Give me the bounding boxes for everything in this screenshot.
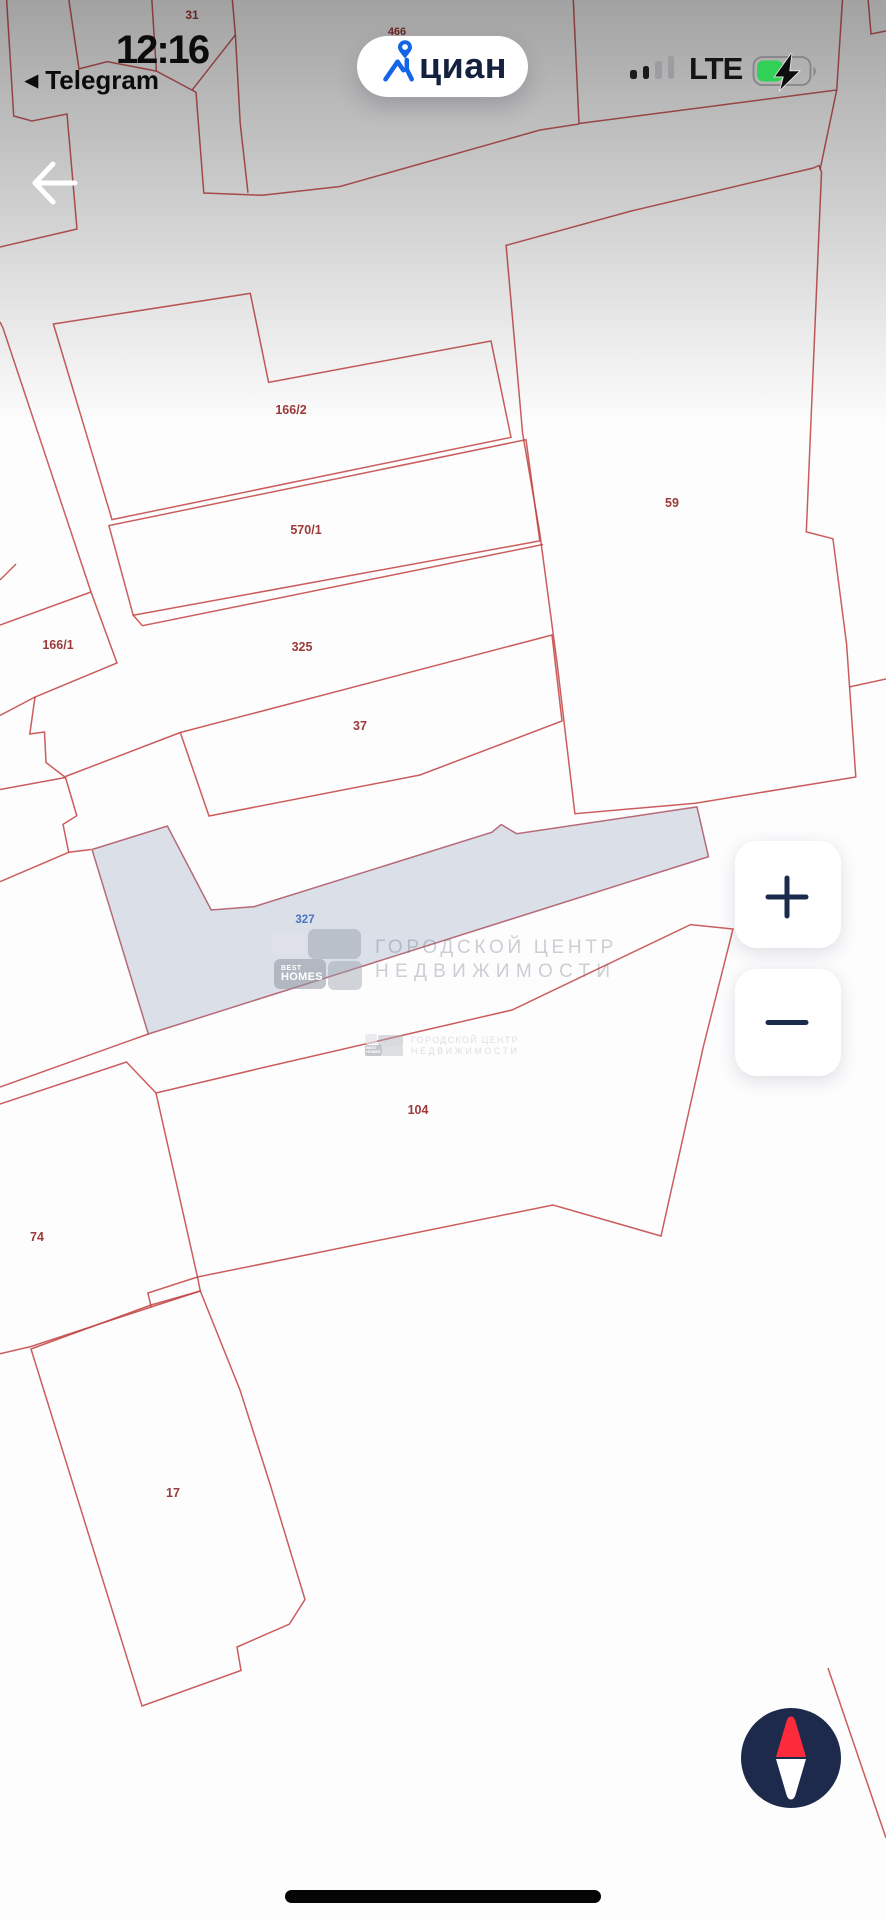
svg-text:37: 37 [353,719,367,733]
svg-text:325: 325 [292,640,313,654]
svg-text:17: 17 [166,1486,180,1500]
svg-text:570/1: 570/1 [290,523,321,537]
svg-text:59: 59 [665,496,679,510]
svg-text:327: 327 [295,914,314,926]
svg-text:74: 74 [30,1230,44,1244]
svg-text:166/1: 166/1 [42,638,73,652]
svg-text:104: 104 [408,1103,429,1117]
